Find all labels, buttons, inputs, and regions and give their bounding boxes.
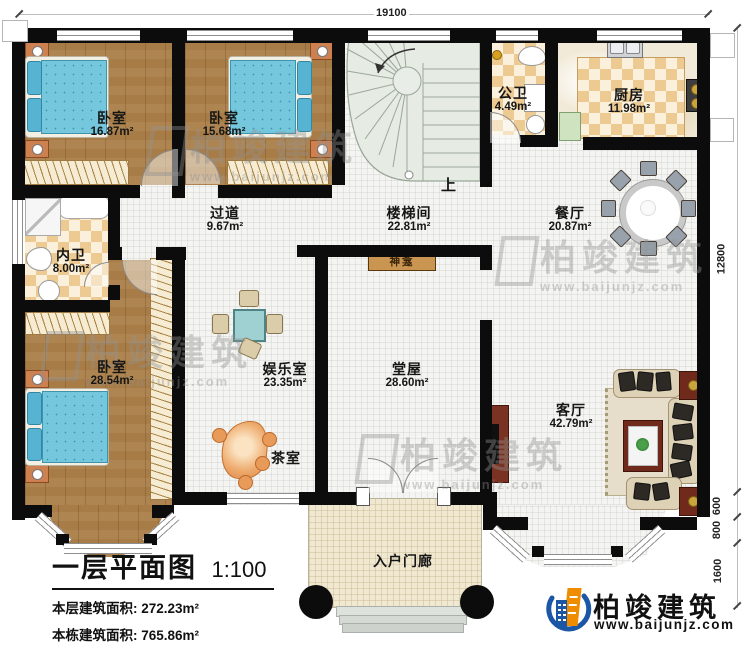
window	[12, 200, 25, 264]
dining-chair	[601, 200, 616, 217]
porch-column	[299, 585, 333, 619]
brand-website: www.baijunjz.com	[594, 617, 735, 632]
tv	[492, 424, 499, 464]
room-label-corridor: 过道 9.67m²	[207, 206, 243, 234]
stat-value: 272.23m²	[141, 601, 199, 616]
dimension-right-800: 800	[711, 521, 723, 539]
nightstand	[25, 370, 49, 388]
nightstand	[25, 140, 49, 158]
room-name: 公卫	[495, 86, 531, 101]
sink	[526, 115, 545, 134]
wall	[520, 135, 545, 147]
wall	[697, 28, 710, 517]
room-label-bedroom3: 卧室 28.54m²	[91, 360, 134, 388]
room-area: 16.87m²	[91, 126, 134, 139]
towel-hook	[492, 50, 502, 60]
sink	[38, 280, 60, 302]
flue-box	[710, 33, 735, 58]
wall	[483, 517, 528, 530]
dimension-line-top	[18, 14, 710, 15]
shower	[25, 198, 61, 236]
pillow	[27, 61, 42, 95]
porch-steps	[342, 623, 464, 633]
room-area: 15.68m²	[203, 126, 246, 139]
window	[597, 30, 682, 41]
wall	[315, 245, 328, 492]
pillow	[297, 98, 312, 132]
sofa-pillow	[618, 371, 636, 392]
room-label-living: 客厅 42.79m²	[550, 403, 593, 431]
room-label-tearoom: 茶室	[271, 451, 301, 466]
dining-chair	[640, 241, 657, 256]
kitchen-sink-bowl	[626, 42, 640, 54]
room-area: 8.00m²	[53, 263, 89, 276]
fridge	[559, 112, 581, 141]
toilet	[26, 247, 52, 271]
room-name: 卧室	[203, 111, 246, 126]
room-name: 过道	[207, 206, 243, 221]
tea-stool	[238, 475, 253, 490]
window	[227, 493, 299, 504]
sofa-pillow	[655, 371, 672, 391]
wall	[108, 247, 122, 260]
pillow	[27, 98, 42, 132]
room-label-kitchen: 厨房 11.98m²	[608, 88, 650, 116]
game-table	[233, 309, 266, 342]
room-name: 入户门廊	[373, 554, 433, 569]
dining-chair	[640, 161, 657, 176]
stat-row: 本栋建筑面积: 765.86m²	[52, 624, 274, 644]
room-label-stairwell: 楼梯间 22.81m²	[387, 206, 432, 234]
wall	[172, 185, 185, 198]
room-name: 卧室	[91, 111, 134, 126]
sofa-pillow	[671, 443, 693, 462]
plan-title-row: 一层平面图 1:100	[52, 546, 274, 590]
wall	[480, 320, 492, 492]
room-area: 23.35m²	[263, 377, 308, 390]
room-name: 客厅	[550, 403, 593, 418]
wall	[545, 135, 558, 147]
window	[187, 30, 293, 41]
room-label-inner-bath: 内卫 8.00m²	[53, 248, 89, 276]
window	[57, 30, 140, 41]
sofa-pillow	[652, 482, 670, 501]
room-name: 楼梯间	[387, 206, 432, 221]
pillow	[27, 392, 42, 425]
bay-post	[611, 546, 623, 557]
plan-scale: 1:100	[211, 557, 266, 582]
room-name: 厨房	[608, 88, 650, 103]
wall	[445, 492, 487, 505]
game-chair	[239, 290, 259, 307]
bathtub	[58, 195, 110, 219]
dining-table-center	[640, 200, 656, 216]
title-block: 一层平面图 1:100 本层建筑面积: 272.23m² 本栋建筑面积: 765…	[52, 546, 274, 648]
room-label-gameroom: 娱乐室 23.35m²	[263, 362, 308, 390]
room-area: 28.60m²	[386, 377, 429, 390]
dimension-top-label: 19100	[374, 7, 409, 19]
bay-post	[532, 546, 544, 557]
floor-plan-canvas: 上	[0, 0, 750, 648]
room-area: 11.98m²	[608, 103, 650, 116]
room-name: 堂屋	[386, 362, 429, 377]
pillow	[27, 428, 42, 461]
room-area: 4.49m²	[495, 101, 531, 114]
sofa-pillow	[636, 371, 654, 392]
wall	[12, 28, 25, 520]
wall	[108, 285, 120, 300]
bed-mattress	[42, 391, 108, 463]
nightstand	[310, 42, 334, 60]
plan-title: 一层平面图	[52, 553, 197, 583]
stat-row: 本层建筑面积: 272.23m²	[52, 597, 274, 617]
wardrobe	[23, 160, 129, 185]
tea-stool	[212, 428, 227, 443]
stat-label: 本栋建筑面积:	[52, 628, 138, 643]
stat-value: 765.86m²	[141, 628, 199, 643]
bay-window	[544, 554, 612, 565]
room-label-dining: 餐厅 20.87m²	[549, 206, 592, 234]
wall	[332, 43, 345, 185]
game-chair	[212, 314, 229, 334]
wall	[545, 43, 558, 147]
wall	[25, 185, 140, 198]
porch-column	[460, 585, 494, 619]
room-label-bedroom2: 卧室 15.68m²	[203, 111, 246, 139]
dimension-right-600: 600	[711, 497, 723, 515]
room-name: 茶室	[271, 451, 301, 466]
wardrobe	[25, 312, 110, 335]
room-area: 22.81m²	[387, 221, 432, 234]
dimension-line-right	[737, 28, 738, 608]
game-chair	[266, 314, 283, 334]
plant	[636, 438, 649, 451]
room-area: 42.79m²	[550, 418, 593, 431]
kitchen-sink-bowl	[610, 42, 624, 54]
nightstand	[25, 465, 49, 483]
stat-label: 本层建筑面积:	[52, 601, 138, 616]
tea-stool	[255, 456, 270, 471]
room-label-public-bath: 公卫 4.49m²	[495, 86, 531, 114]
wall	[480, 245, 492, 270]
wall	[299, 492, 357, 505]
window	[368, 30, 450, 41]
sofa-pillow	[633, 482, 651, 501]
tea-stool	[262, 432, 277, 447]
stairs-up-label: 上	[441, 174, 456, 195]
dining-chair	[681, 200, 696, 217]
room-name: 娱乐室	[263, 362, 308, 377]
room-area: 9.67m²	[207, 221, 243, 234]
room-area: 28.54m²	[91, 375, 134, 388]
brand-logo-icon	[544, 584, 592, 634]
room-name: 内卫	[53, 248, 89, 263]
wall	[480, 135, 490, 147]
wall	[25, 300, 110, 312]
dimension-right-12800: 12800	[715, 244, 727, 275]
sofa-pillow	[672, 423, 694, 441]
window	[496, 30, 538, 41]
dimension-tick	[733, 602, 741, 610]
wall	[218, 185, 332, 198]
wall	[583, 137, 710, 150]
wardrobe	[227, 160, 329, 185]
room-name: 卧室	[91, 360, 134, 375]
wall	[185, 492, 227, 505]
sofa-pillow	[672, 402, 694, 421]
nightstand	[310, 140, 334, 158]
flue-box	[710, 118, 734, 142]
door-post	[437, 487, 451, 506]
spiral-staircase	[345, 33, 480, 185]
toilet	[518, 46, 546, 66]
wall	[640, 517, 697, 530]
room-label-porch: 入户门廊	[373, 554, 433, 569]
wall	[172, 247, 185, 505]
dimension-right-1600: 1600	[712, 559, 724, 583]
room-label-main-hall: 堂屋 28.60m²	[386, 362, 429, 390]
flue-box	[2, 20, 28, 42]
dimension-tick	[704, 10, 712, 18]
room-area: 20.87m²	[549, 221, 592, 234]
pillow	[297, 61, 312, 95]
room-name: 餐厅	[549, 206, 592, 221]
room-label-bedroom1: 卧室 16.87m²	[91, 111, 134, 139]
